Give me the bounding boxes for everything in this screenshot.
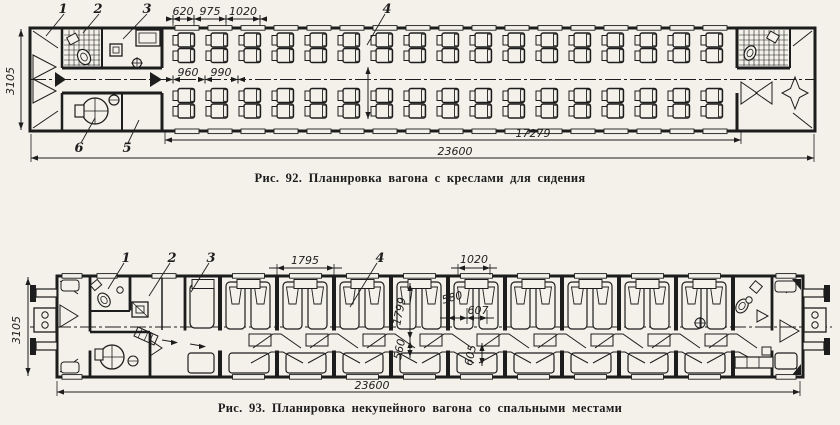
fig93-dim-23600: 23600 — [355, 379, 390, 392]
fig92-dim-1020: 1020 — [229, 5, 257, 18]
fig93-dim-607: 607 — [468, 304, 489, 317]
fig92-callout-1: 1 — [58, 2, 67, 17]
fig93-dim-1795: 1795 — [291, 254, 319, 267]
fig92-callout-3: 3 — [142, 2, 151, 17]
fig92-dim-990: 990 — [211, 66, 232, 79]
railcar-floorplans-drawing: 620 975 1020 960 990 3105 17279 23600 1 … — [0, 0, 840, 425]
fig93-dim-3105: 3105 — [10, 316, 23, 344]
scanned-page: 620 975 1020 960 990 3105 17279 23600 1 … — [0, 0, 840, 425]
fig92-dim-17279: 17279 — [516, 127, 551, 140]
fig92-caption: Рис. 92. Планировка вагона с креслами дл… — [255, 171, 586, 185]
fig93-callout-1: 1 — [121, 251, 130, 266]
fig92-dim-620: 620 — [173, 5, 194, 18]
fig93-dim-1020: 1020 — [460, 253, 488, 266]
fig92-callout-6: 6 — [74, 141, 83, 156]
fig93-caption: Рис. 93. Планировка некупейного вагона с… — [218, 401, 622, 415]
fig92-dim-975: 975 — [200, 5, 221, 18]
fig93-callout-2: 2 — [166, 251, 176, 266]
fig92-dim-3105: 3105 — [4, 67, 17, 95]
fig92-callout-2: 2 — [92, 2, 102, 17]
fig92-callout-4: 4 — [382, 2, 391, 17]
fig92-callout-5: 5 — [122, 141, 131, 156]
fig92-geometry — [18, 14, 815, 162]
fig92-dim-960: 960 — [178, 66, 199, 79]
fig93-callout-3: 3 — [206, 251, 215, 266]
fig93-callout-4: 4 — [375, 251, 384, 266]
fig92-dim-23600: 23600 — [438, 145, 473, 158]
fig93-geometry — [25, 263, 832, 396]
